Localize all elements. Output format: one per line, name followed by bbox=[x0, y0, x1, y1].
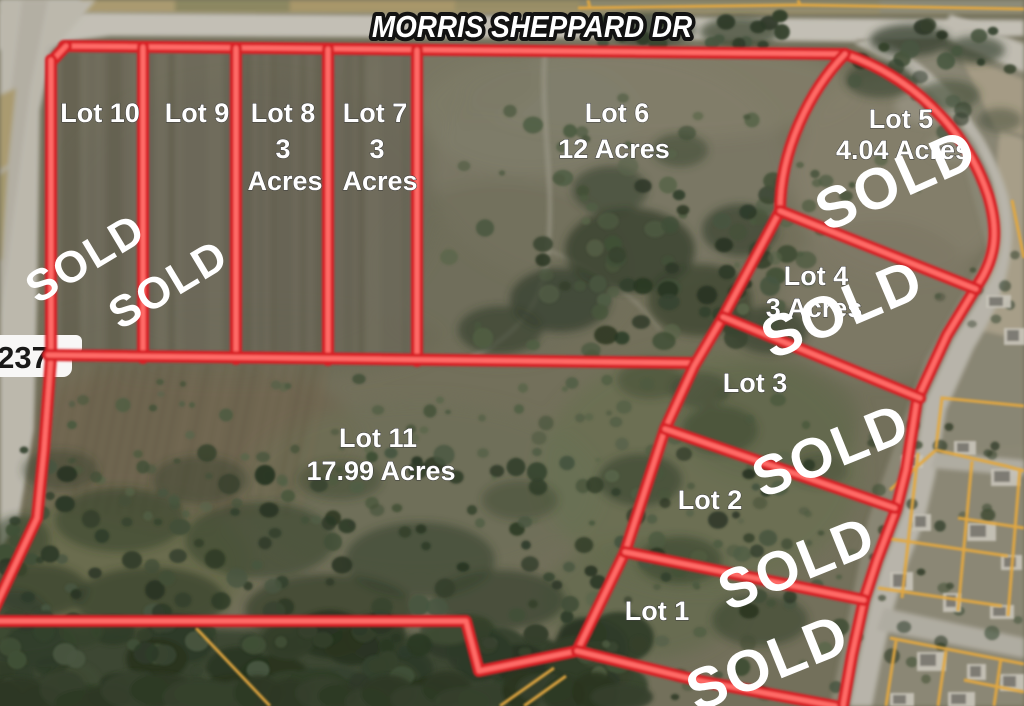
svg-text:17.99 Acres: 17.99 Acres bbox=[306, 456, 455, 486]
svg-text:3: 3 bbox=[369, 134, 384, 164]
svg-text:Lot 1: Lot 1 bbox=[625, 596, 690, 626]
svg-text:MORRIS SHEPPARD DR: MORRIS SHEPPARD DR bbox=[372, 10, 693, 45]
svg-text:12 Acres: 12 Acres bbox=[558, 134, 670, 164]
svg-text:Lot 5: Lot 5 bbox=[869, 104, 934, 134]
svg-text:Lot 9: Lot 9 bbox=[165, 98, 230, 128]
svg-text:Acres: Acres bbox=[247, 166, 322, 196]
svg-text:Lot 8: Lot 8 bbox=[251, 98, 316, 128]
svg-text:Lot 6: Lot 6 bbox=[585, 98, 650, 128]
svg-text:Lot 11: Lot 11 bbox=[339, 423, 417, 453]
svg-text:Acres: Acres bbox=[342, 166, 417, 196]
svg-text:3: 3 bbox=[275, 134, 290, 164]
svg-text:Lot 3: Lot 3 bbox=[723, 368, 788, 398]
svg-text:Lot 7: Lot 7 bbox=[343, 98, 408, 128]
svg-text:Lot 2: Lot 2 bbox=[678, 485, 743, 515]
svg-text:Lot 10: Lot 10 bbox=[60, 98, 140, 128]
